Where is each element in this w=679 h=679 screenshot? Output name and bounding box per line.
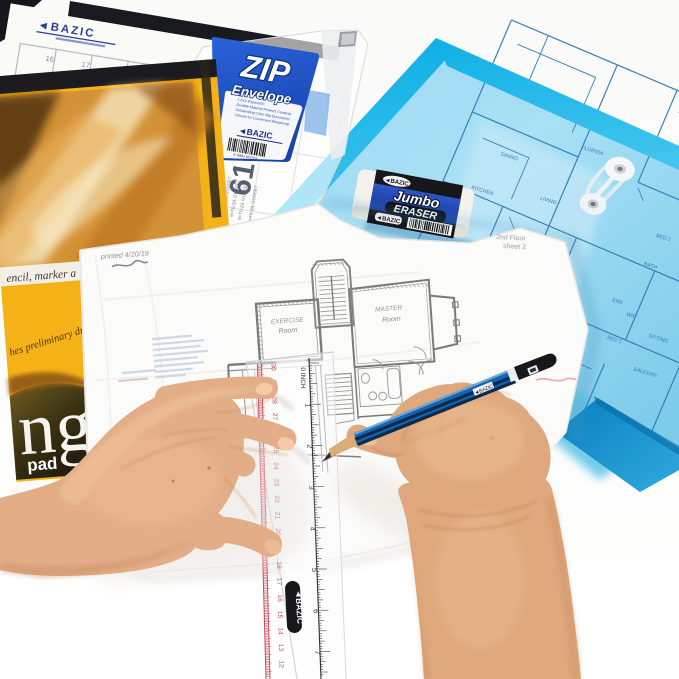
svg-text:◄BAZIC: ◄BAZIC <box>294 589 306 624</box>
svg-text:27: 27 <box>271 413 278 421</box>
svg-text:16: 16 <box>276 594 283 602</box>
svg-text:sheet 2: sheet 2 <box>503 243 526 251</box>
svg-text:15: 15 <box>276 611 283 619</box>
svg-text:14: 14 <box>277 627 284 635</box>
svg-text:5: 5 <box>310 568 319 572</box>
svg-text:Room: Room <box>382 316 401 324</box>
svg-text:Room: Room <box>278 327 297 335</box>
svg-text:13: 13 <box>277 644 284 652</box>
svg-text:pad: pad <box>26 454 58 475</box>
svg-text:0 INCH: 0 INCH <box>299 367 306 389</box>
svg-text:17: 17 <box>81 60 91 70</box>
svg-text:16: 16 <box>45 54 55 64</box>
svg-text:17: 17 <box>275 578 282 586</box>
svg-text:12: 12 <box>278 660 285 668</box>
svg-text:7: 7 <box>313 650 322 654</box>
svg-text:1: 1 <box>304 403 313 407</box>
svg-text:6: 6 <box>311 609 320 613</box>
svg-text:2: 2 <box>305 444 314 448</box>
svg-text:30: 30 <box>270 363 277 371</box>
